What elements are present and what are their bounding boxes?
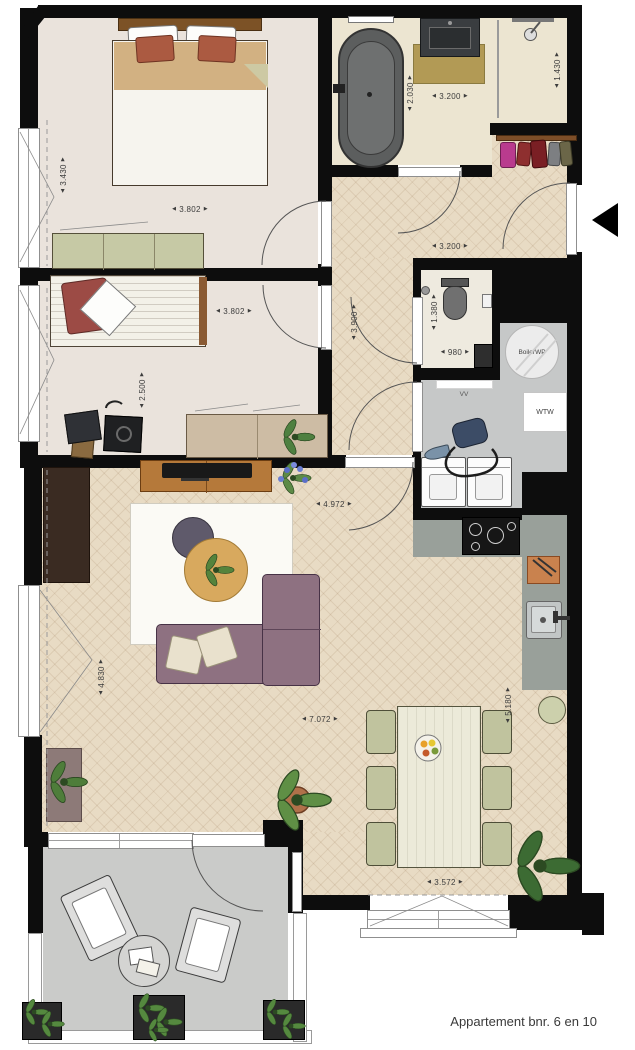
shower-glass <box>497 20 499 118</box>
heating-manifold <box>436 380 493 389</box>
dimension-label: 2.030 <box>405 68 415 118</box>
wall <box>20 8 38 128</box>
door-leaf-bathroom <box>398 167 462 177</box>
kitchen-faucet-handle <box>553 611 558 623</box>
wall <box>263 820 303 847</box>
tv <box>162 463 252 478</box>
shower-head <box>524 28 537 41</box>
bath-faucet <box>333 84 345 93</box>
dimension-label: 1.430 <box>552 45 562 95</box>
wall <box>24 832 48 847</box>
hand-basin <box>482 294 492 308</box>
turntable <box>64 410 102 444</box>
cutting-board <box>527 556 560 584</box>
coat <box>500 142 516 168</box>
window-balcony <box>48 833 194 849</box>
floorplan: BoilerWP WTW VV <box>0 0 635 1050</box>
dimension-label: 3.430 <box>58 150 68 200</box>
planter-box <box>263 1000 305 1040</box>
wall <box>413 368 500 380</box>
wall <box>567 682 582 897</box>
sofa-corner <box>262 574 320 686</box>
boiler-label: BoilerWP <box>518 349 545 356</box>
door-leaf-entrance <box>566 183 577 255</box>
door-leaf-bedroom2 <box>321 285 332 350</box>
vanity-sink <box>420 18 480 57</box>
wall <box>302 895 370 910</box>
dimension-label: 3.572 <box>420 877 470 887</box>
toilet <box>443 286 467 320</box>
washing-machine <box>421 457 466 507</box>
stool <box>538 696 566 724</box>
dimension-label: 3.900 <box>349 297 359 347</box>
dining-table <box>397 706 481 868</box>
wall <box>38 5 582 18</box>
wall <box>460 165 492 177</box>
dimension-label: 1.380 <box>429 287 439 337</box>
wall-shaft <box>500 258 567 323</box>
wall <box>20 440 38 468</box>
door-leaf-balcony <box>192 834 265 847</box>
tall-cabinet <box>43 467 90 583</box>
cushion <box>135 35 175 64</box>
door-leaf-utility <box>412 382 423 452</box>
dimension-label: 4.972 <box>309 499 359 509</box>
cushion <box>197 35 236 63</box>
coat <box>530 139 548 168</box>
dryer <box>467 457 512 507</box>
wtw-unit: WTW <box>523 392 567 432</box>
dining-chair <box>482 822 512 866</box>
wall <box>508 895 582 930</box>
speaker <box>103 415 143 453</box>
wardrobe <box>52 233 204 269</box>
bathtub <box>338 28 404 168</box>
dining-chair <box>366 822 396 866</box>
dimension-label: 2.500 <box>137 365 147 415</box>
dimension-label: 5.180 <box>503 680 513 730</box>
kitchen-faucet <box>556 616 570 620</box>
window <box>18 285 40 442</box>
cooktop <box>462 517 520 555</box>
dimension-label: 7.072 <box>295 714 345 724</box>
wall <box>522 472 567 515</box>
planter-box <box>46 748 82 822</box>
wall <box>413 270 421 297</box>
wall <box>24 735 42 847</box>
dimension-label: 3.200 <box>425 241 475 251</box>
boiler-heatpump: BoilerWP <box>505 325 559 379</box>
wall <box>332 455 346 468</box>
coat <box>559 140 574 166</box>
dining-chair <box>366 766 396 810</box>
wtw-label: WTW <box>536 409 554 416</box>
wall <box>318 18 332 201</box>
dining-chair <box>482 766 512 810</box>
window <box>18 585 40 737</box>
dimension-label: 3.802 <box>165 204 215 214</box>
wall <box>492 270 500 368</box>
planter-box <box>22 1002 62 1040</box>
wall <box>413 258 500 270</box>
dimension-label: 3.200 <box>425 91 475 101</box>
towel-rack <box>348 16 394 23</box>
wall <box>24 468 42 585</box>
door-leaf-living <box>345 457 415 468</box>
tv-stand <box>181 478 209 481</box>
dimension-label: 980 <box>430 347 480 357</box>
window-side <box>292 852 302 912</box>
dresser <box>186 414 328 458</box>
window <box>18 128 40 268</box>
shower-rail <box>512 18 554 22</box>
vv-label: VV <box>450 390 478 399</box>
dimension-label: 3.802 <box>209 306 259 316</box>
wall <box>28 847 43 933</box>
window-sliding <box>367 910 510 930</box>
wall <box>582 893 604 935</box>
wall <box>490 123 582 135</box>
bed-rail <box>199 277 207 345</box>
duvet-fold <box>244 64 268 88</box>
door-leaf-bedroom1 <box>321 201 332 267</box>
coffee-table-round <box>184 538 248 602</box>
wall <box>20 266 38 287</box>
dimension-label: 4.830 <box>96 652 106 702</box>
apartment-caption: Appartement bnr. 6 en 10 <box>427 1014 597 1029</box>
window-sill <box>360 928 517 938</box>
hallway-floor <box>332 258 413 455</box>
entrance-arrow-icon <box>592 203 618 237</box>
dining-chair <box>366 710 396 754</box>
planter-box <box>133 995 185 1040</box>
door-leaf-toilet <box>412 297 423 365</box>
